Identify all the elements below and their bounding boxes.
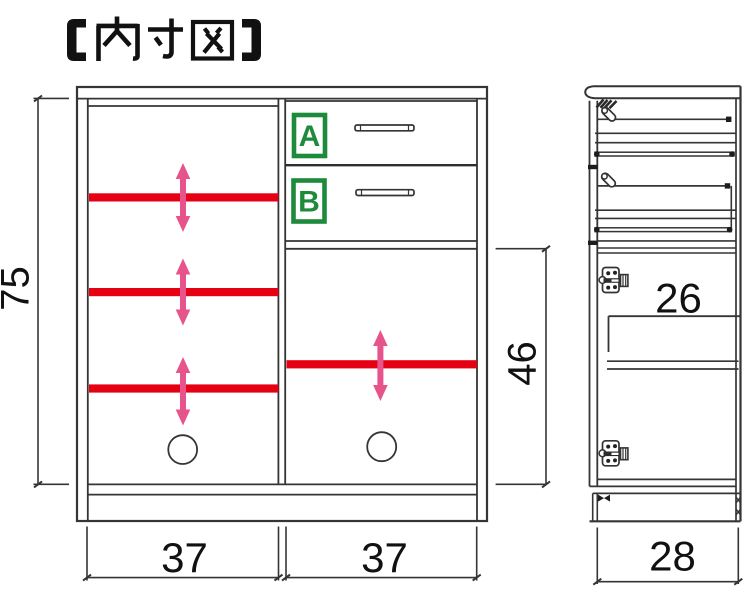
- svg-text:37: 37: [161, 534, 208, 581]
- svg-text:75: 75: [0, 266, 38, 311]
- svg-text:26: 26: [655, 275, 702, 322]
- svg-text:37: 37: [361, 534, 408, 581]
- svg-text:46: 46: [501, 341, 545, 386]
- svg-text:A: A: [299, 120, 321, 153]
- svg-text:28: 28: [649, 533, 696, 580]
- svg-text:B: B: [298, 186, 320, 219]
